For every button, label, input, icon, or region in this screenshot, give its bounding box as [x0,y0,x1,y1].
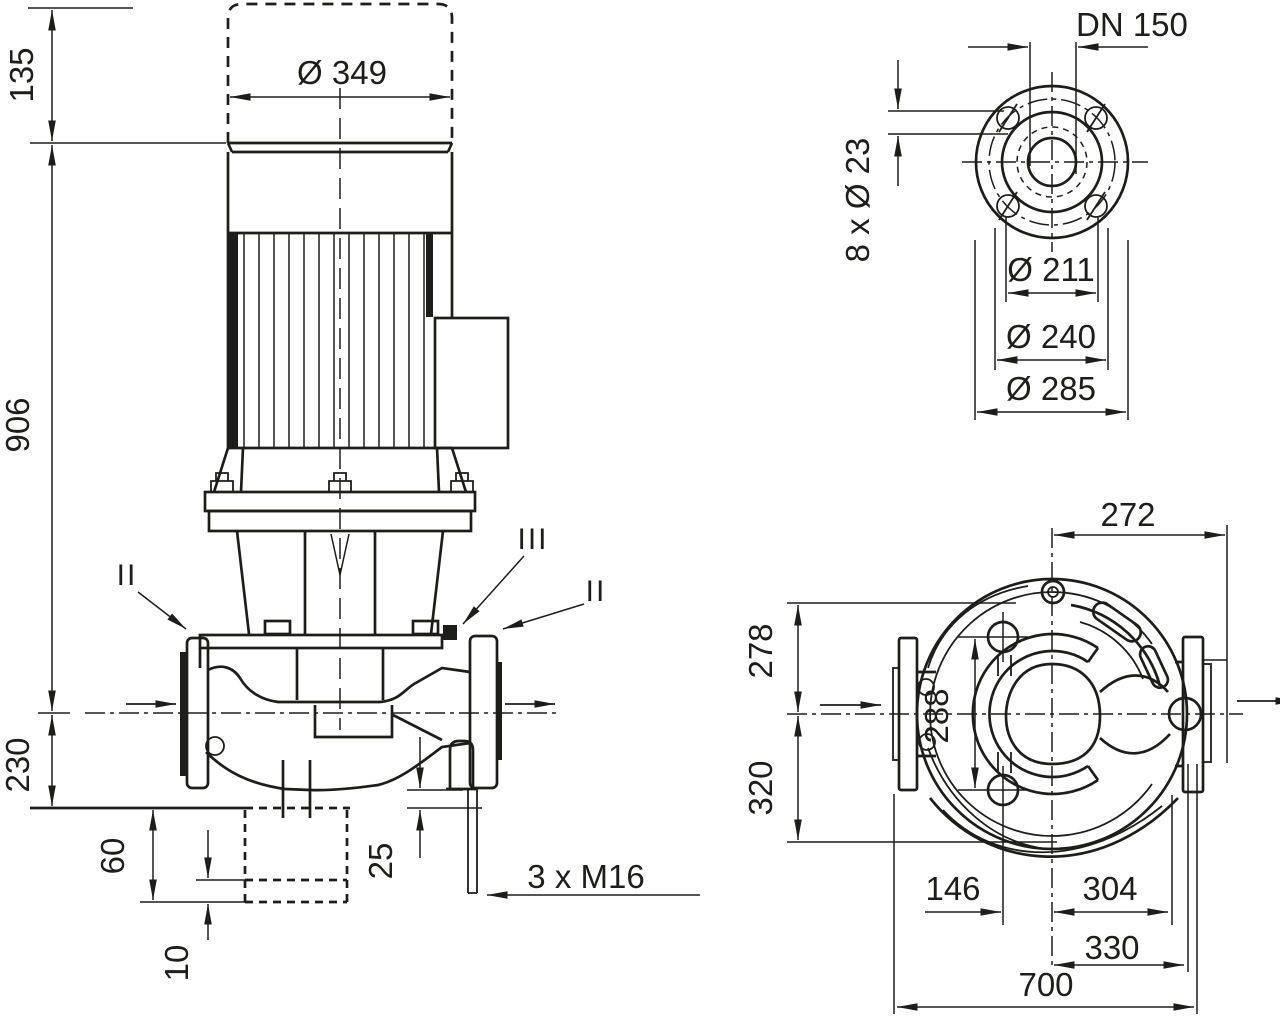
dim-10-text: 10 [158,945,195,982]
plate-bolts [211,473,473,492]
flush-port [443,625,457,640]
dim-60-text: 60 [94,838,131,875]
section-leader-right [503,604,584,629]
volute-lower [206,715,470,790]
motor-fins [244,233,424,448]
flange-view: DN 150 8 x Ø 23 Ø 211 Ø 240 Ø 285 [839,6,1188,420]
dn150-label: DN 150 [1076,6,1188,43]
dim-230-text: 230 [0,737,36,792]
ext-272 [1203,525,1227,763]
dim-700-text: 700 [1018,966,1073,1003]
seal-pad-left [265,621,290,634]
section-label-left: II [117,559,138,592]
section-label-right: II [586,575,607,608]
dim-320-text: 320 [742,760,779,815]
terminal-box [435,318,508,448]
section-leader-left [138,592,186,629]
drawing-canvas: 135 906 230 Ø 349 60 10 25 3 x M16 II II… [0,0,1280,1024]
discharge-flange-face [497,662,502,760]
dim-285-text: Ø 285 [1006,370,1096,407]
fin-shadow-right [426,233,433,317]
dim-288-text: 288 [918,688,955,743]
dim-272-text: 272 [1100,496,1155,533]
dim-135-text: 135 [3,47,40,102]
volute-center-boss [315,705,392,737]
seal-housing [200,635,442,648]
dim-278-text: 278 [742,623,779,678]
dim-240-text: Ø 240 [1006,318,1096,355]
m16-label: 3 x M16 [527,858,644,895]
front-view: 135 906 230 Ø 349 60 10 25 3 x M16 II II… [0,4,700,981]
ext-boltholes [888,111,1008,134]
dim-211-text: Ø 211 [1007,251,1094,288]
rib-lens-1 [1090,599,1145,645]
section-label-mid: III [517,523,548,556]
top-view: 272 278 320 288 146 304 330 700 [742,496,1280,1014]
dim-330-text: 330 [1084,929,1139,966]
dim-146-text: 146 [925,870,980,907]
pump-dimensional-drawing: 135 906 230 Ø 349 60 10 25 3 x M16 II II… [0,0,1280,1024]
dim-304-text: 304 [1082,870,1137,907]
suction-flange-face [180,652,186,776]
dim-906-text: 906 [0,397,36,452]
foundation-dashed [245,810,347,902]
dim-25-text: 25 [362,843,399,880]
support-leg [446,741,477,789]
section-leader-mid [463,556,524,624]
fin-shadow-left [229,233,238,448]
boltholes-label: 8 x Ø 23 [839,138,876,263]
ext-dn150 [1030,42,1076,174]
volute-upper [200,648,470,702]
dim-349-text: Ø 349 [297,54,387,91]
stud-m16 [468,789,477,893]
seal-pad-right [413,621,438,634]
